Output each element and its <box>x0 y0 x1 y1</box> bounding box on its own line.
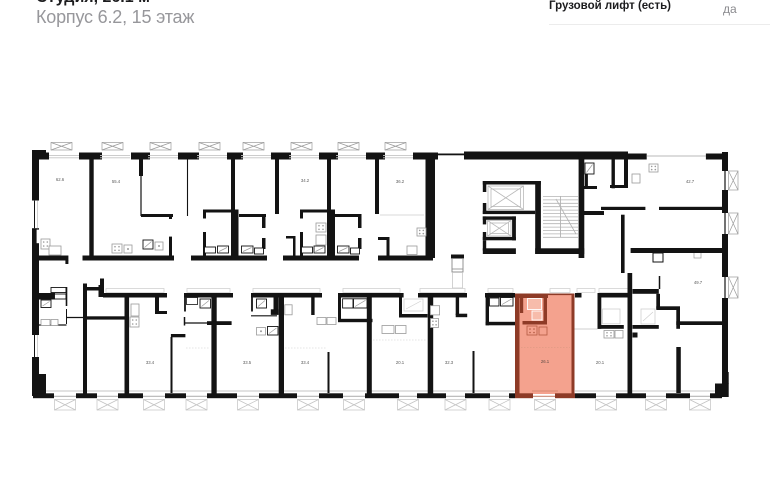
svg-text:49.7: 49.7 <box>694 280 703 285</box>
svg-text:20.1: 20.1 <box>596 360 605 365</box>
svg-text:33.4: 33.4 <box>301 360 310 365</box>
svg-text:20.1: 20.1 <box>396 360 405 365</box>
svg-text:33.5: 33.5 <box>243 360 252 365</box>
svg-text:42.7: 42.7 <box>686 179 695 184</box>
svg-text:26.1: 26.1 <box>541 359 550 364</box>
svg-text:34.2: 34.2 <box>301 178 310 183</box>
svg-text:33.4: 33.4 <box>146 360 155 365</box>
svg-text:62.6: 62.6 <box>56 177 65 182</box>
svg-text:32.3: 32.3 <box>445 360 454 365</box>
svg-text:55.4: 55.4 <box>112 179 121 184</box>
svg-text:36.2: 36.2 <box>396 179 405 184</box>
